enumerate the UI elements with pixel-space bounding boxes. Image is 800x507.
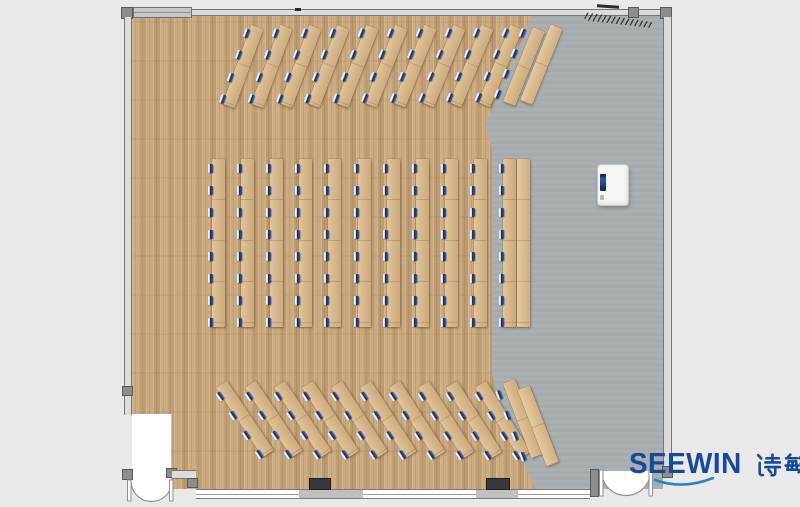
brand-cjk-glyphs xyxy=(755,451,800,479)
brand-cjk: 诗敏 xyxy=(755,451,800,484)
door-left-swing xyxy=(128,480,174,502)
cabinet-screen xyxy=(600,174,606,191)
brand-swoosh-icon xyxy=(653,477,715,489)
cabinet-vent xyxy=(600,195,604,200)
door-swings xyxy=(0,0,800,507)
brand-logo: SEEWIN 诗敏 xyxy=(629,451,800,484)
brand-wordmark: SEEWIN xyxy=(629,451,742,478)
floorplan-canvas: SEEWIN 诗敏 xyxy=(0,0,800,507)
white-cabinet xyxy=(597,164,629,206)
brand-wordmark-wrap: SEEWIN xyxy=(629,451,746,478)
